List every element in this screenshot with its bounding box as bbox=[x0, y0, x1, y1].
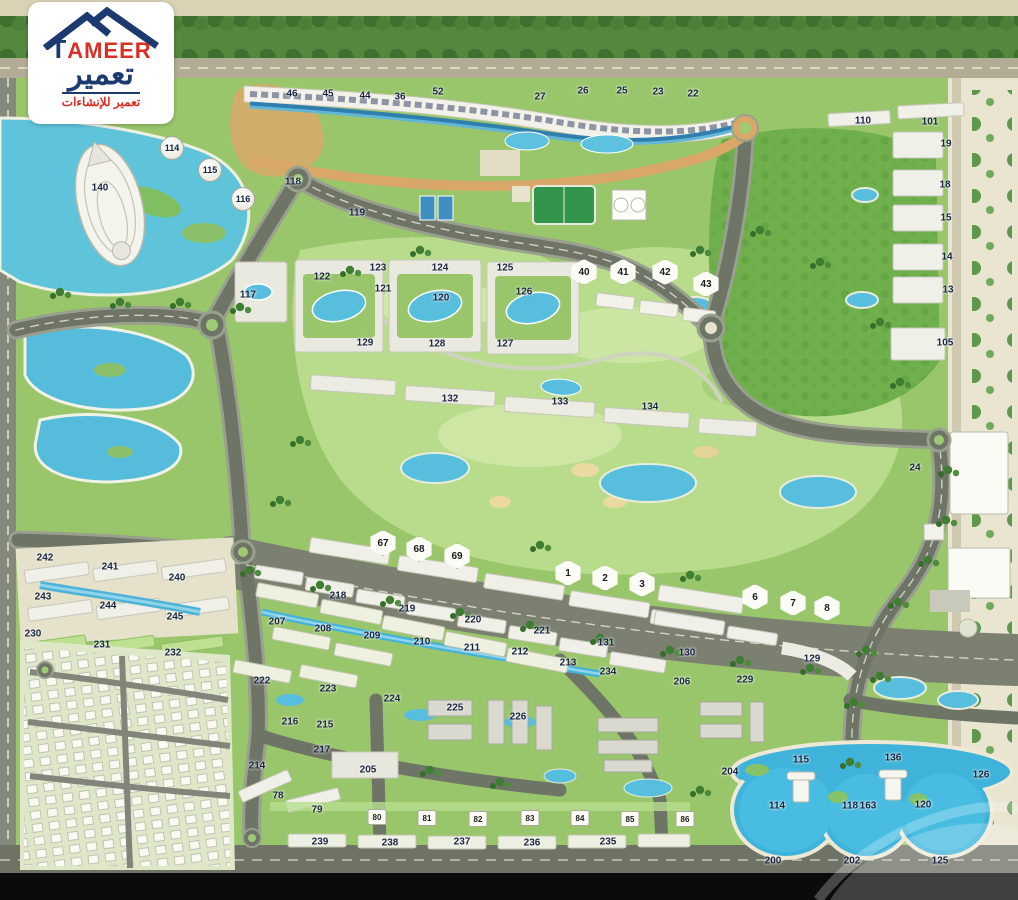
plot-label: 200 bbox=[765, 856, 782, 867]
plot-label: 214 bbox=[249, 761, 266, 772]
plot-label: 236 bbox=[524, 838, 541, 849]
plot-label: 237 bbox=[454, 837, 471, 848]
plot-label: 215 bbox=[317, 720, 334, 731]
plot-label: 125 bbox=[497, 263, 514, 274]
plot-label: 120 bbox=[915, 800, 932, 811]
plot-label: 124 bbox=[432, 263, 449, 274]
plot-label: 134 bbox=[642, 402, 659, 413]
plot-label: 136 bbox=[885, 753, 902, 764]
logo-letter-t: T bbox=[50, 34, 67, 64]
plot-label: 216 bbox=[282, 717, 299, 728]
plot-label: 206 bbox=[674, 677, 691, 688]
plot-label: 121 bbox=[375, 284, 392, 295]
plot-label: 126 bbox=[516, 287, 533, 298]
plot-label: 15 bbox=[940, 213, 951, 224]
plot-label: 140 bbox=[92, 183, 109, 194]
plot-label: 78 bbox=[272, 791, 283, 802]
plot-label: 25 bbox=[616, 86, 627, 97]
plot-label: 232 bbox=[165, 648, 182, 659]
plot-label: 229 bbox=[737, 675, 754, 686]
plot-label: 224 bbox=[384, 694, 401, 705]
plot-label: 225 bbox=[447, 703, 464, 714]
plot-label: 245 bbox=[167, 612, 184, 623]
plot-label: 105 bbox=[937, 338, 954, 349]
plot-label: 27 bbox=[534, 92, 545, 103]
plot-label: 235 bbox=[600, 837, 617, 848]
plot-label: 13 bbox=[942, 285, 953, 296]
developer-logo: TAMEER تعمير تعمير للإنشاءات bbox=[28, 2, 174, 124]
plot-label: 223 bbox=[320, 684, 337, 695]
plot-label: 114 bbox=[769, 801, 785, 812]
plot-label: 217 bbox=[314, 745, 331, 756]
masterplan-svg bbox=[0, 0, 1018, 900]
plot-label: 79 bbox=[311, 805, 322, 816]
plot-label: 211 bbox=[464, 643, 480, 654]
plot-label: 19 bbox=[940, 139, 951, 150]
plot-label: 118 bbox=[842, 801, 858, 812]
house-marker: 80 bbox=[368, 809, 387, 825]
dome-marker: 115 bbox=[198, 158, 222, 182]
plot-label: 239 bbox=[312, 837, 329, 848]
plot-label: 128 bbox=[429, 339, 446, 350]
plot-label: 126 bbox=[973, 770, 990, 781]
plot-label: 210 bbox=[414, 637, 431, 648]
plot-label: 129 bbox=[357, 338, 374, 349]
plot-label: 22 bbox=[687, 89, 698, 100]
plot-label: 52 bbox=[432, 87, 443, 98]
plot-label: 122 bbox=[314, 272, 331, 283]
plot-label: 110 bbox=[855, 116, 871, 127]
plot-label: 231 bbox=[94, 640, 111, 651]
plot-label: 213 bbox=[560, 658, 577, 669]
house-marker: 85 bbox=[621, 811, 640, 827]
plot-label: 23 bbox=[652, 87, 663, 98]
plot-label: 244 bbox=[100, 601, 117, 612]
plot-label: 119 bbox=[349, 208, 365, 219]
plot-label: 207 bbox=[269, 617, 286, 628]
plot-label: 18 bbox=[939, 180, 950, 191]
plot-label: 230 bbox=[25, 629, 42, 640]
plot-label: 115 bbox=[793, 755, 809, 766]
plot-label: 24 bbox=[909, 463, 920, 474]
plot-label: 243 bbox=[35, 592, 52, 603]
plot-label: 125 bbox=[932, 856, 949, 867]
plot-label: 212 bbox=[512, 647, 529, 658]
logo-brand-arabic: تعمير bbox=[68, 60, 134, 90]
plot-label: 208 bbox=[315, 624, 332, 635]
plot-label: 129 bbox=[804, 654, 821, 665]
plot-label: 14 bbox=[941, 252, 952, 263]
house-marker: 82 bbox=[469, 811, 488, 827]
plot-label: 133 bbox=[552, 397, 569, 408]
plot-label: 127 bbox=[497, 339, 514, 350]
plot-label: 132 bbox=[442, 394, 459, 405]
plot-label: 204 bbox=[722, 767, 739, 778]
plot-label: 220 bbox=[465, 615, 482, 626]
house-marker: 81 bbox=[418, 810, 437, 826]
plot-label: 117 bbox=[240, 290, 256, 301]
plot-label: 26 bbox=[577, 86, 588, 97]
plot-label: 209 bbox=[364, 631, 381, 642]
plot-label: 234 bbox=[600, 667, 617, 678]
plot-label: 242 bbox=[37, 553, 54, 564]
plot-label: 226 bbox=[510, 712, 527, 723]
plot-label: 123 bbox=[370, 263, 387, 274]
plot-label: 118 bbox=[285, 177, 301, 188]
plot-label: 131 bbox=[598, 638, 615, 649]
plot-label: 101 bbox=[922, 117, 939, 128]
plot-label: 46 bbox=[286, 89, 297, 100]
plot-label: 163 bbox=[860, 801, 877, 812]
plot-label: 205 bbox=[360, 765, 377, 776]
plot-label: 218 bbox=[330, 591, 347, 602]
plot-label: 36 bbox=[394, 92, 405, 103]
house-marker: 86 bbox=[676, 811, 695, 827]
plot-label: 130 bbox=[679, 648, 696, 659]
plot-label: 240 bbox=[169, 573, 186, 584]
plot-label: 221 bbox=[534, 626, 551, 637]
plot-label: 222 bbox=[254, 676, 271, 687]
plot-label: 45 bbox=[322, 89, 333, 100]
logo-tagline: تعمير للإنشاءات bbox=[62, 92, 140, 109]
plot-label: 202 bbox=[844, 856, 861, 867]
house-marker: 83 bbox=[521, 810, 540, 826]
dome-marker: 114 bbox=[160, 136, 184, 160]
map-stage: TAMEER تعمير تعمير للإنشاءات 46454436522… bbox=[0, 0, 1018, 900]
plot-label: 238 bbox=[382, 838, 399, 849]
dome-marker: 116 bbox=[231, 187, 255, 211]
plot-label: 44 bbox=[359, 91, 370, 102]
plot-label: 219 bbox=[399, 604, 416, 615]
plot-label: 120 bbox=[433, 293, 450, 304]
plot-label: 241 bbox=[102, 562, 119, 573]
house-marker: 84 bbox=[571, 810, 590, 826]
